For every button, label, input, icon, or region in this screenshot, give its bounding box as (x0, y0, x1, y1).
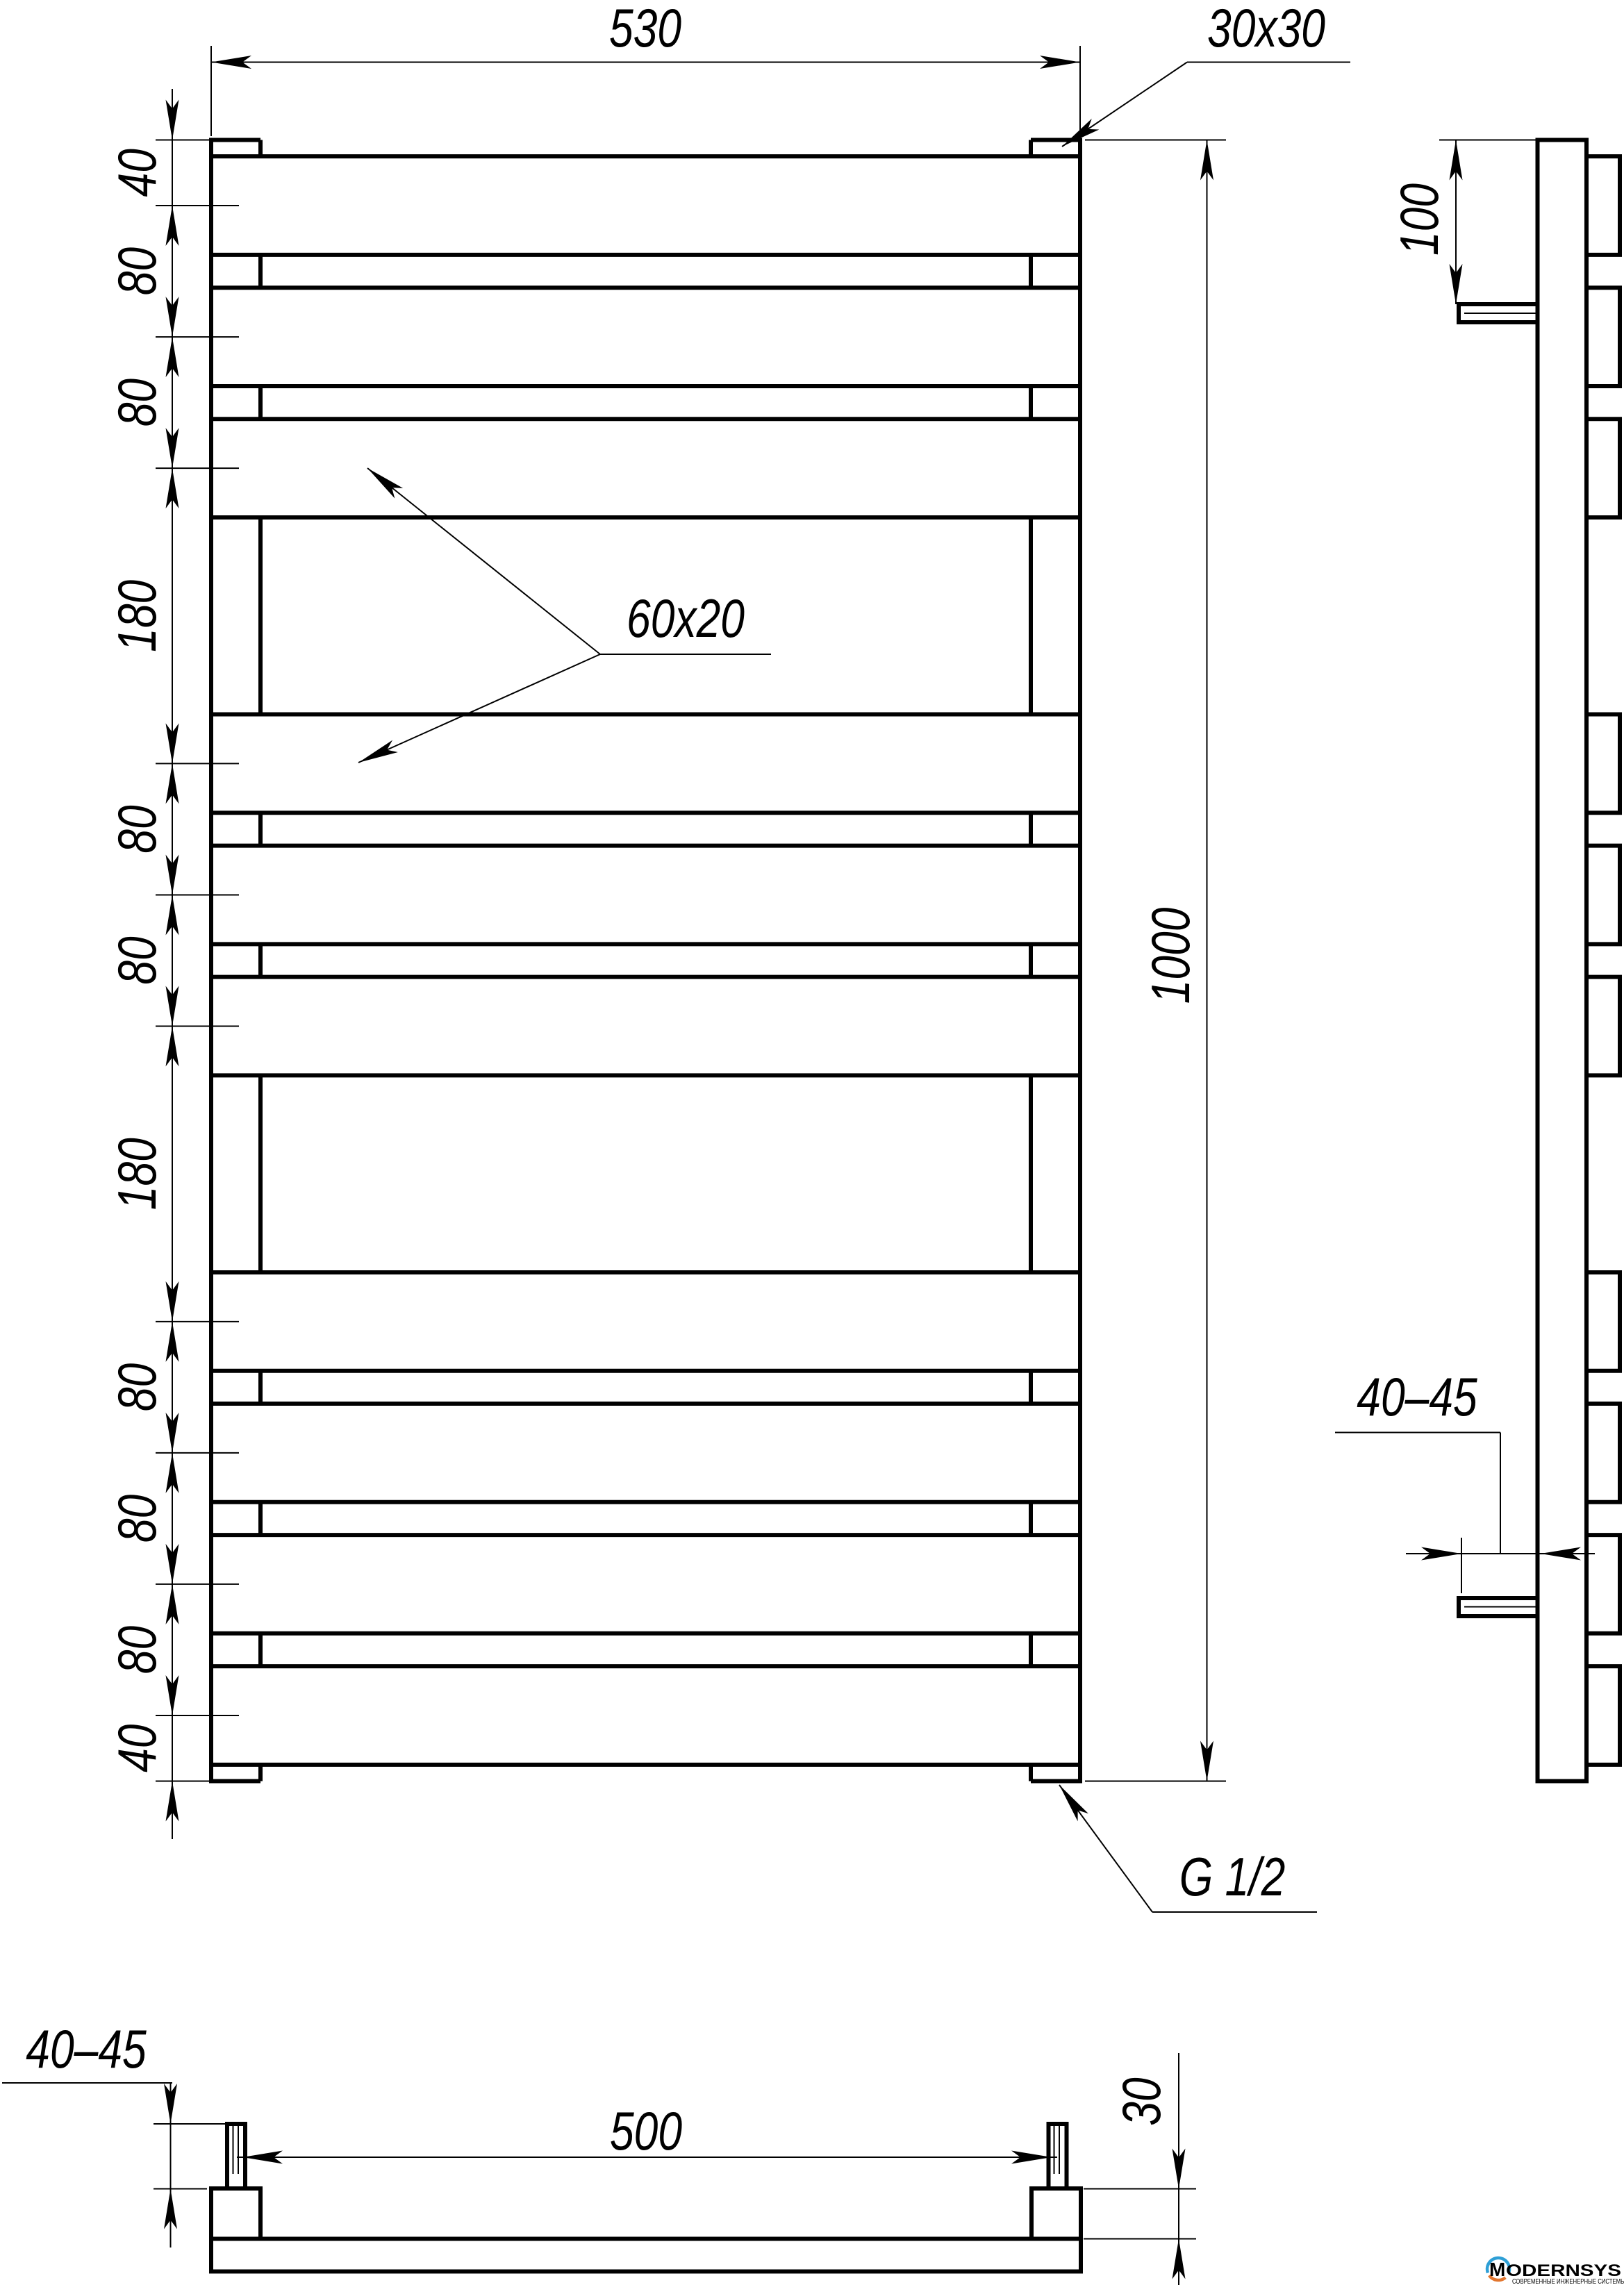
svg-text:80: 80 (106, 1495, 167, 1543)
svg-text:30: 30 (1111, 2077, 1171, 2125)
svg-text:G 1/2: G 1/2 (1179, 1846, 1286, 1906)
svg-text:80: 80 (106, 805, 167, 853)
svg-text:80: 80 (106, 1626, 167, 1674)
svg-text:40: 40 (106, 1724, 167, 1772)
svg-text:60x20: 60x20 (627, 588, 745, 648)
svg-text:80: 80 (106, 379, 167, 426)
svg-text:100: 100 (1389, 183, 1449, 256)
svg-text:40–45: 40–45 (26, 2018, 147, 2079)
svg-text:40: 40 (106, 149, 167, 197)
svg-text:80: 80 (106, 247, 167, 295)
svg-text:40–45: 40–45 (1357, 1366, 1477, 1427)
svg-text:80: 80 (106, 936, 167, 984)
svg-text:180: 180 (106, 580, 167, 652)
svg-text:500: 500 (610, 2100, 682, 2161)
svg-text:ODERNSYS: ODERNSYS (1506, 2261, 1621, 2280)
svg-text:M: M (1489, 2259, 1505, 2280)
svg-text:530: 530 (609, 0, 681, 58)
svg-text:СОВРЕМЕННЫЕ ИНЖЕНЕРНЫЕ СИСТЕМЫ: СОВРЕМЕННЫЕ ИНЖЕНЕРНЫЕ СИСТЕМЫ (1512, 2278, 1624, 2285)
svg-text:1000: 1000 (1140, 908, 1200, 1004)
svg-text:30x30: 30x30 (1207, 0, 1325, 58)
svg-text:180: 180 (106, 1138, 167, 1210)
svg-text:80: 80 (106, 1363, 167, 1411)
